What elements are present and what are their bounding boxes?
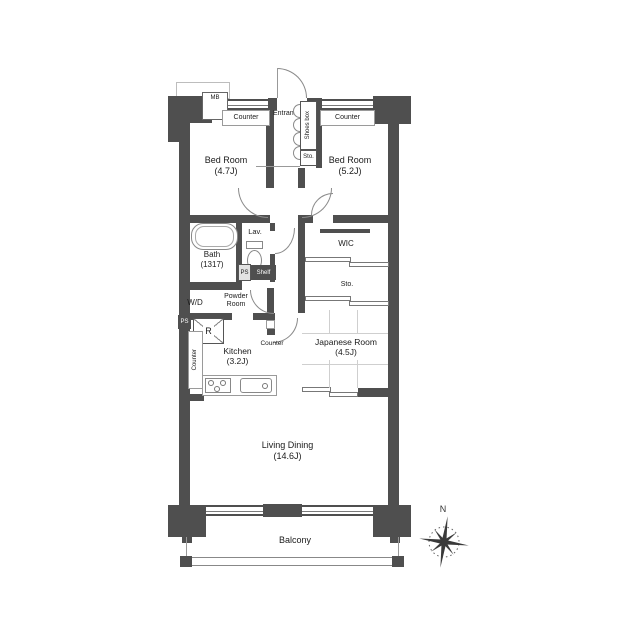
shelf-box: Shelf [251, 265, 276, 280]
wall-bath-south [185, 282, 242, 290]
wic-hanger-pole [320, 229, 370, 233]
balcony-rail-end-right [392, 556, 404, 567]
sliding-door-sto-b [349, 301, 389, 306]
sliding-door-sto-a [305, 296, 351, 301]
shoes-box-label: Shoes box [300, 101, 317, 150]
shoesbox-folding-door-3 [293, 132, 300, 146]
wall-right [388, 120, 399, 507]
wall-hall-right-upper [298, 168, 305, 188]
sink-drain [262, 383, 268, 389]
wall-bottom-center [263, 504, 302, 517]
kitchen-counter-mini-box [266, 320, 275, 329]
stove-burner-1 [208, 380, 214, 386]
wall-hall-right-lower [298, 218, 305, 313]
window-top-left [228, 99, 268, 110]
shoesbox-folding-door-4 [293, 146, 300, 160]
entrance-door-leaf [277, 68, 278, 98]
sliding-door-wic-a [305, 257, 351, 262]
kitchen-counter-label: Counter [252, 338, 292, 349]
compass-rose: N [414, 498, 476, 568]
bedroom1-door-arc [238, 188, 268, 218]
storage-right-label: Sto. [332, 279, 362, 291]
window-bottom-left [206, 505, 263, 516]
meter-box-label: MB [202, 94, 228, 103]
tatami-line-h2 [302, 364, 388, 365]
wall-pillar-bottom-right [373, 505, 411, 537]
wall-japanese-south [358, 388, 388, 397]
stove-burner-3 [214, 386, 220, 392]
balcony-rail [182, 557, 402, 566]
powder-room-label: PowderRoom [206, 290, 266, 312]
shoesbox-folding-door-1 [293, 104, 300, 118]
bath-label: Bath(1317) [188, 247, 236, 273]
wall-pillar-bottom-left [168, 505, 206, 537]
wall-bedroom2-wic-right [333, 215, 388, 223]
balcony-rail-end-left [180, 556, 192, 567]
compass-north-label: N [440, 504, 447, 514]
bedroom1-label: Bed Room(4.7J) [186, 153, 266, 179]
entrance-door-arc [277, 68, 307, 98]
stove-burner-2 [220, 380, 226, 386]
sliding-door-wic-b [349, 262, 389, 267]
sliding-door-japanese-b [329, 392, 358, 397]
window-top-right [322, 99, 373, 110]
wic-label: WIC [328, 238, 364, 250]
bedroom2-label: Bed Room(5.2J) [312, 153, 388, 179]
pipe-space-lower: PS [178, 315, 191, 329]
toilet-tank [246, 241, 263, 249]
counter-top-right-label: Counter [320, 110, 375, 126]
balcony-label: Balcony [245, 533, 345, 547]
floor-plan: MB Counter Entrance Shoes box Sto. Count… [0, 0, 639, 640]
counter-top-left-label: Counter [222, 110, 270, 126]
lavatory-label: Lav. [240, 226, 270, 237]
shoesbox-folding-door-2 [293, 118, 300, 132]
japanese-room-label: Japanese Room(4.5J) [304, 334, 388, 360]
pipe-space-upper: PS [238, 264, 251, 281]
bathtub-inner [195, 226, 234, 247]
window-bottom-right [302, 505, 373, 516]
wall-pillar-bottom-left-foot [182, 537, 192, 543]
lavatory-door-arc [275, 228, 295, 254]
sliding-door-japanese-a [302, 387, 331, 392]
living-dining-label: Living Dining(14.6J) [240, 437, 335, 464]
